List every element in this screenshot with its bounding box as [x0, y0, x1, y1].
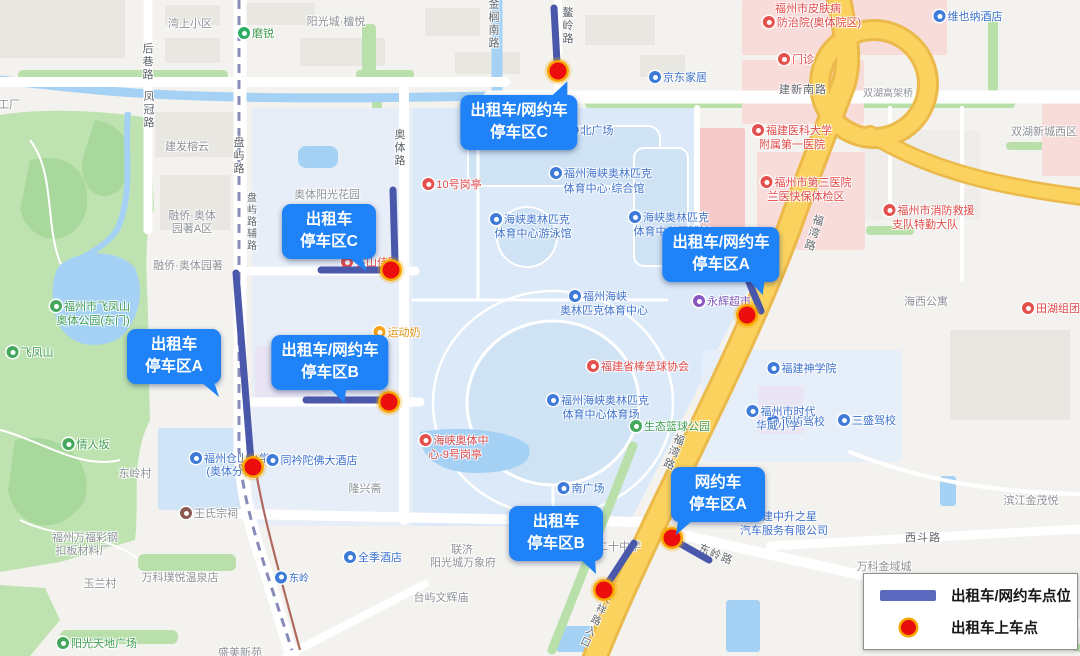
map-label: 后巷路: [139, 43, 155, 82]
legend-dot-label: 出租车上车点: [951, 617, 1038, 638]
map-label-text: 同衿陀佛大酒店: [281, 452, 358, 468]
map-label-text: 西斗路: [905, 529, 941, 545]
map-label-text: 建发榕云: [165, 138, 209, 154]
map-label: 体育中心体育场: [563, 406, 640, 422]
pickup-point-marker[interactable]: [739, 307, 756, 324]
blue-poi-icon: [275, 571, 287, 583]
map-label-text: 工厂: [0, 96, 20, 112]
map-label: 奥体路: [391, 129, 407, 168]
map-label: 东岭: [275, 570, 309, 585]
callout-taxi-parking-b: 出租车 停车区B: [509, 506, 603, 561]
green-poi-icon: [7, 346, 19, 358]
green-poi-icon: [57, 637, 69, 649]
map-label-text: 维也纳酒店: [948, 8, 1003, 24]
callout-taxi-wyc-parking-a: 出租车/网约车 停车区A: [662, 227, 779, 282]
map-label: 工厂: [0, 96, 20, 112]
callout-line: 停车区B: [281, 362, 378, 384]
map-label: 隆兴斋: [349, 480, 382, 496]
map-label-text: 10号岗亭: [436, 176, 481, 192]
map-label: 万科金域城: [857, 558, 912, 574]
map-label: 防治院(奥体院区): [763, 14, 861, 30]
callout-line: 停车区A: [681, 494, 755, 516]
map-label-text: 奥林匹克体育中心: [560, 302, 648, 318]
map-label-text: 运动奶: [388, 324, 421, 340]
blue-poi-icon: [838, 414, 850, 426]
map-label: 磨锐: [238, 25, 274, 41]
map-label: 海西公寓: [904, 293, 948, 309]
callout-line: 停车区A: [672, 254, 769, 276]
map-label-text: 支队特勤大队: [892, 216, 958, 232]
map-label: 华威小学: [756, 417, 800, 433]
map-label: 湾上小区: [168, 15, 212, 31]
blue-poi-icon: [267, 454, 279, 466]
map-label-text: 南广场: [572, 480, 605, 496]
map-label: 建新南路: [779, 81, 827, 97]
callout-taxi-parking-c: 出租车 停车区C: [282, 204, 376, 259]
map-label: 鳌岭路: [559, 7, 575, 46]
map-label-text: 阳光城万象府: [430, 554, 496, 570]
map-label-text: 王氏宗祠: [194, 505, 238, 521]
metro-poi-icon: [238, 27, 250, 39]
map-label: 田湖组团: [1022, 300, 1080, 316]
map-label-text: 情人坂: [77, 436, 110, 452]
map-label: 维也纳酒店: [934, 8, 1003, 24]
red-poi-icon: [884, 204, 896, 216]
map-label: 生态篮球公园: [630, 418, 710, 434]
map-label-text: 隆兴斋: [349, 480, 382, 496]
blue-poi-icon: [569, 290, 581, 302]
map-label: 奥体公园(东门): [56, 312, 129, 328]
map-label-text: 体育中心体育场: [563, 406, 640, 422]
blue-poi-icon: [747, 405, 759, 417]
map-label-text: 福建省棒垒球协会: [601, 358, 689, 374]
blue-poi-icon: [490, 213, 502, 225]
callout-wyc-parking-a: 网约车 停车区A: [671, 467, 765, 522]
map-label: 阳光城万象府: [430, 554, 496, 570]
map-label-text: 阳光天地广场: [71, 635, 137, 651]
callout-line: 网约车: [681, 472, 755, 494]
red-poi-icon: [761, 176, 773, 188]
map-label-text: 福湾路: [799, 212, 826, 254]
legend: 出租车/网约车点位 出租车上车点: [863, 573, 1078, 650]
map-label: 福州海峡奥林匹克: [550, 165, 652, 181]
map-label: 二十中学: [597, 538, 641, 554]
map-label-text: 京东家居: [663, 69, 707, 85]
map-label-text: 奥体公园(东门): [56, 312, 129, 328]
blue-poi-icon: [934, 10, 946, 22]
callout-line: 停车区B: [519, 533, 593, 555]
map-label: 金榈南路: [485, 0, 501, 50]
legend-line-label: 出租车/网约车点位: [951, 585, 1071, 606]
map-label-text: 兰医快保体检区: [768, 188, 845, 204]
map-label-text: 体育中心游泳馆: [495, 225, 572, 241]
map-label: 奥体阳光花园: [294, 186, 360, 202]
map-label-text: 门诊: [792, 51, 814, 67]
map-label-text: 福州海峡奥林匹克: [564, 165, 652, 181]
map-label-text: 东岭村: [119, 465, 152, 481]
map-label-text: 天祥路入口: [575, 590, 614, 651]
map-label-text: 盘屿路辅路: [243, 192, 258, 252]
dark-poi-icon: [180, 507, 192, 519]
map-label: 阳光城·檀悦: [307, 13, 366, 29]
map-label: 玉兰村: [84, 575, 117, 591]
callout-line: 出租车/网约车: [281, 340, 378, 362]
pickup-point-marker[interactable]: [383, 262, 400, 279]
map-label-text: 阳光城·檀悦: [307, 13, 366, 29]
map-label: 三盛驾校: [838, 412, 896, 428]
map-label: 汽车服务有限公司: [740, 522, 828, 538]
callout-taxi-parking-a: 出租车 停车区A: [127, 329, 221, 384]
map-label: 东岭路: [696, 540, 735, 568]
map-label-text: 福建神学院: [782, 360, 837, 376]
map-label-text: 东岭路: [696, 540, 735, 568]
map-label-text: 磨锐: [252, 25, 274, 41]
callout-line: 出租车/网约车: [672, 232, 769, 254]
map-label-text: 奥体路: [391, 129, 407, 168]
map-label: 情人坂: [63, 436, 110, 452]
purple-poi-icon: [693, 295, 705, 307]
callout-line: 出租车: [519, 511, 593, 533]
callout-taxi-wyc-parking-b: 出租车/网约车 停车区B: [271, 335, 388, 390]
map-label-text: 汽车服务有限公司: [740, 522, 828, 538]
map-label: 建发榕云: [165, 138, 209, 154]
legend-row-pickup-dot: 出租车上车点: [880, 617, 1077, 638]
map-label-text: 园著A区: [172, 220, 212, 236]
map-label: 西斗路: [905, 529, 941, 545]
map-label: 支队特勤大队: [892, 216, 958, 232]
blue-poi-icon: [547, 394, 559, 406]
map-label-text: 玉兰村: [84, 575, 117, 591]
map-label: 全季酒店: [344, 549, 402, 565]
map-label: 盘屿路: [230, 137, 246, 176]
map-label-text: 体育中心·综合馆: [564, 180, 645, 196]
pickup-point-marker[interactable]: [596, 582, 613, 599]
map-label-text: 万科金域城: [857, 558, 912, 574]
map-label: 双湖新城西区: [1011, 123, 1077, 139]
map-label: 10号岗亭: [422, 176, 481, 192]
red-poi-icon: [587, 360, 599, 372]
map-label: 东岭村: [119, 465, 152, 481]
legend-row-parking-line: 出租车/网约车点位: [880, 585, 1077, 606]
map-label-text: 双湖新城西区: [1011, 123, 1077, 139]
map-label-text: 建新南路: [779, 81, 827, 97]
map-label: 天祥路入口: [575, 590, 614, 651]
map-label: 福湾路: [799, 212, 826, 254]
map-label-text: 扣板材料厂: [56, 542, 111, 558]
map-label-text: 金榈南路: [485, 0, 501, 50]
map-label-text: 鳌岭路: [559, 7, 575, 46]
map-label-text: 凤冠路: [140, 91, 156, 130]
callout-line: 停车区C: [470, 122, 567, 144]
map-label-text: 全季酒店: [358, 549, 402, 565]
map-label-text: 东岭: [289, 570, 309, 585]
pickup-dot-swatch: [901, 620, 916, 635]
red-poi-icon: [420, 434, 432, 446]
blue-poi-icon: [768, 362, 780, 374]
blue-poi-icon: [344, 551, 356, 563]
pickup-point-marker[interactable]: [245, 459, 262, 476]
map-label-text: 双湖高架桥: [863, 85, 913, 100]
pickup-point-marker[interactable]: [381, 394, 398, 411]
map-label: 园著A区: [172, 220, 212, 236]
callout-taxi-wyc-parking-c: 出租车/网约车 停车区C: [460, 95, 577, 150]
map-label: 心-9号岗亭: [428, 446, 482, 462]
red-poi-icon: [778, 53, 790, 65]
red-poi-icon: [422, 178, 434, 190]
map-label-text: 湾上小区: [168, 15, 212, 31]
map-label: 凤冠路: [140, 91, 156, 130]
map-label: 万科璞悦温泉店: [142, 569, 219, 585]
map-label-text: 盛美新苑: [218, 644, 262, 656]
callout-line: 出租车/网约车: [470, 100, 567, 122]
map-label: 盛美新苑: [218, 644, 262, 656]
map-label: 体育中心游泳馆: [495, 225, 572, 241]
map-label: 双湖高架桥: [863, 85, 913, 100]
map-label-text: 华威小学: [756, 417, 800, 433]
map-label: 王氏宗祠: [180, 505, 238, 521]
callout-line: 停车区C: [292, 231, 366, 253]
map-label-text: 后巷路: [139, 43, 155, 82]
green-poi-icon: [50, 300, 62, 312]
map-label: 体育中心·综合馆: [564, 180, 645, 196]
map-label-text: 心-9号岗亭: [428, 446, 482, 462]
map-label-text: 台屿文辉庙: [414, 589, 469, 605]
map-label: 福建省棒垒球协会: [587, 358, 689, 374]
red-poi-icon: [763, 16, 775, 28]
legend-swatch-wrap: [880, 590, 936, 601]
map-label: 阳光天地广场: [57, 635, 137, 651]
red-poi-icon: [752, 124, 764, 136]
blue-poi-icon: [558, 482, 570, 494]
map-label: 同衿陀佛大酒店: [267, 452, 358, 468]
map-label: 台屿文辉庙: [414, 589, 469, 605]
map-label: 融侨·奥体园著: [153, 257, 223, 273]
map-label: 福建神学院: [768, 360, 837, 376]
callout-line: 出租车: [292, 209, 366, 231]
map-label-text: 融侨·奥体园著: [153, 257, 223, 273]
map-label-text: 万科璞悦温泉店: [142, 569, 219, 585]
blue-poi-icon: [550, 167, 562, 179]
map-canvas[interactable]: 湾上小区磨锐阳光城·檀悦维也纳酒店后巷路凤冠路工厂金榈南路鳌岭路京东家居门诊福州…: [0, 0, 1080, 656]
red-poi-icon: [1022, 302, 1034, 314]
map-label-text: 奥体阳光花园: [294, 186, 360, 202]
map-label-text: 防治院(奥体院区): [777, 14, 861, 30]
map-label: 门诊: [778, 51, 814, 67]
map-label-text: 三盛驾校: [852, 412, 896, 428]
blue-poi-icon: [649, 71, 661, 83]
map-label: 飞凤山: [7, 344, 54, 360]
map-label-text: 海西公寓: [904, 293, 948, 309]
green-poi-icon: [63, 438, 75, 450]
map-label: 附属第一医院: [759, 136, 825, 152]
map-label-text: 生态篮球公园: [644, 418, 710, 434]
map-label-text: 盘屿路: [230, 137, 246, 176]
parking-line-swatch: [880, 590, 936, 601]
map-label-text: 田湖组团: [1036, 300, 1080, 316]
map-label: 京东家居: [649, 69, 707, 85]
map-label: 南广场: [558, 480, 605, 496]
blue-poi-icon: [190, 452, 202, 464]
pickup-point-marker[interactable]: [550, 63, 567, 80]
map-label-text: 飞凤山: [21, 344, 54, 360]
map-label: 兰医快保体检区: [768, 188, 845, 204]
map-label: 奥林匹克体育中心: [560, 302, 648, 318]
callout-line: 停车区A: [137, 356, 211, 378]
map-label: 扣板材料厂: [56, 542, 111, 558]
callout-line: 出租车: [137, 334, 211, 356]
map-label: 滨江金茂悦: [1004, 492, 1059, 508]
blue-poi-icon: [629, 211, 641, 223]
legend-swatch-wrap: [880, 620, 936, 635]
map-label-text: 滨江金茂悦: [1004, 492, 1059, 508]
green-poi-icon: [630, 420, 642, 432]
map-label-text: 北广场: [581, 122, 614, 138]
map-label: 盘屿路辅路: [243, 192, 258, 252]
map-label-text: 附属第一医院: [759, 136, 825, 152]
map-label-text: 二十中学: [597, 538, 641, 554]
